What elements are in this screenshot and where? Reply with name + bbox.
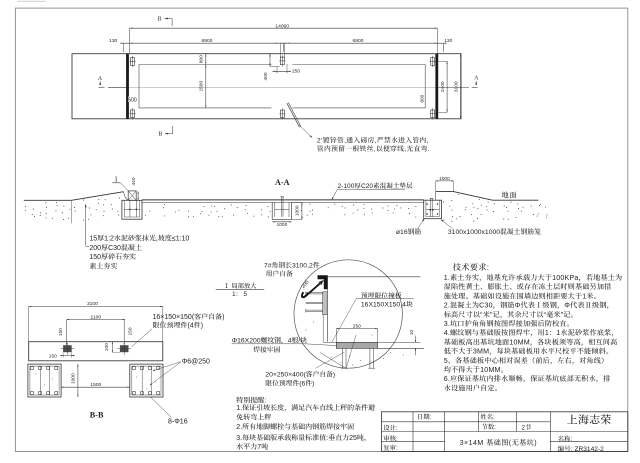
svg-text:20×250×400(客户自备): 20×250×400(客户自备) [265, 370, 335, 378]
svg-text:标高尺寸以“米”记，其余尺寸以“毫米”记。: 标高尺寸以“米”记，其余尺寸以“毫米”记。 [444, 310, 578, 319]
svg-text:800: 800 [420, 94, 425, 102]
svg-text:素土夯实: 素土夯实 [89, 263, 117, 271]
svg-text:250: 250 [353, 323, 361, 329]
svg-text:7#角钢长3100,2件: 7#角钢长3100,2件 [264, 261, 320, 269]
svg-text:1500: 1500 [198, 81, 204, 92]
svg-text:4.螺纹钢与基础版按图焊牢，用1：1水泥砂浆作底浆，: 4.螺纹钢与基础版按图焊牢，用1：1水泥砂浆作底浆， [444, 328, 619, 337]
svg-text:Ⅰ 局部放大: Ⅰ 局部放大 [223, 282, 257, 290]
svg-text:免转弯上秤: 免转弯上秤 [236, 414, 271, 422]
svg-text:16×150×150(客户自备): 16×150×150(客户自备) [153, 313, 225, 321]
svg-text:5、各基础板中心相对误差（前后，左右，对角线）: 5、各基础板中心相对误差（前后，左右，对角线） [444, 356, 609, 365]
svg-text:1000: 1000 [70, 373, 76, 384]
svg-text:审核:: 审核: [383, 434, 398, 442]
svg-text:6.应保证基坑内排水顺畅，保证基坑底部无积水，排: 6.应保证基坑内排水顺畅，保证基坑底部无积水，排 [444, 374, 611, 383]
svg-text:上海志荣: 上海志荣 [567, 413, 612, 426]
svg-text:8-Φ16: 8-Φ16 [168, 418, 188, 425]
svg-text:湿陷性黄土、膨胀土、或存在冻土层时则基础另加措: 湿陷性黄土、膨胀土、或存在冻土层时则基础另加措 [444, 282, 612, 291]
svg-text:130: 130 [109, 38, 117, 44]
svg-text:2’镀锌管,通入磅房,严禁水进入管内,: 2’镀锌管,通入磅房,严禁水进入管内, [317, 136, 429, 144]
svg-text:特别提醒:: 特别提醒: [236, 396, 266, 404]
svg-text:焊接牢固: 焊接牢固 [253, 346, 280, 354]
svg-text:400: 400 [263, 72, 269, 80]
svg-text:A-A: A-A [275, 178, 290, 187]
svg-text:Φ6@250: Φ6@250 [182, 358, 210, 365]
svg-text:姓名:: 姓名: [480, 413, 495, 421]
svg-text:3×14M 基础图(无基坑): 3×14M 基础图(无基坑) [460, 439, 537, 447]
svg-text:1： 5: 1： 5 [232, 291, 247, 298]
svg-text:150: 150 [49, 353, 57, 359]
svg-text:水平力7吨: 水平力7吨 [236, 443, 268, 451]
svg-text:节数:: 节数: [482, 423, 497, 431]
svg-text:ø16钢筋: ø16钢筋 [396, 228, 422, 236]
svg-text:基础板高出基坑地面10MM，各块板须等高，相互间高: 基础板高出基坑地面10MM，各块板须等高，相互间高 [444, 337, 618, 346]
svg-text:1500: 1500 [90, 382, 101, 388]
svg-text:管内预留一根铁丝,以便穿线,无直弯.: 管内预留一根铁丝,以便穿线,无直弯. [317, 145, 430, 153]
svg-text:6900: 6900 [353, 38, 364, 44]
svg-text:用户自备: 用户自备 [266, 270, 293, 278]
svg-text:1000: 1000 [439, 176, 450, 182]
svg-text:设计:: 设计: [383, 424, 398, 432]
svg-text:14060: 14060 [275, 23, 289, 29]
svg-text:1100: 1100 [91, 314, 102, 320]
svg-text:水设施用户自定。: 水设施用户自定。 [444, 383, 502, 392]
svg-text:150厚碎石夯实: 150厚碎石夯实 [89, 253, 136, 261]
svg-text:150: 150 [127, 327, 133, 335]
svg-text:440: 440 [131, 177, 137, 185]
svg-text:15厚1:2水泥砂浆抹光,坡度≤1:10: 15厚1:2水泥砂浆抹光,坡度≤1:10 [89, 235, 189, 243]
svg-text:技术要求:: 技术要求: [453, 263, 490, 272]
svg-text:限位预埋件(4件): 限位预埋件(4件) [153, 321, 204, 329]
svg-text:施处理。基础如设施在围墙边则相距要大于1米。: 施处理。基础如设施在围墙边则相距要大于1米。 [444, 292, 601, 300]
svg-text:16X150X150,4块: 16X150X150,4块 [361, 300, 413, 308]
svg-text:B: B [158, 131, 162, 137]
svg-text:Φ16X200螺纹钢，4根/块: Φ16X200螺纹钢，4根/块 [232, 336, 308, 344]
svg-text:B: B [158, 17, 162, 23]
svg-text:2.混凝土为C30，钢筋Φ代表Ⅰ级钢，Φ代表Ⅱ级钢，: 2.混凝土为C30，钢筋Φ代表Ⅰ级钢，Φ代表Ⅱ级钢， [444, 302, 614, 310]
svg-text:限位预埋件(6件): 限位预埋件(6件) [265, 379, 314, 387]
svg-text:1.保证引坡长度，满足汽车直线上秤的条件避: 1.保证引坡长度，满足汽车直线上秤的条件避 [236, 404, 375, 412]
svg-text:2节: 2节 [521, 424, 532, 432]
svg-text:250: 250 [292, 68, 300, 74]
svg-text:3100: 3100 [87, 301, 98, 307]
svg-text:10: 10 [409, 330, 415, 336]
svg-text:编号: ZR3142-2: 编号: ZR3142-2 [558, 445, 605, 453]
svg-text:3.每块基础版承载称量标准值:垂直力25吨，: 3.每块基础版承载称量标准值:垂直力25吨， [236, 434, 371, 442]
svg-text:150: 150 [58, 328, 64, 336]
svg-text:100: 100 [104, 343, 110, 351]
svg-text:6900: 6900 [202, 38, 213, 44]
svg-text:3100: 3100 [453, 81, 459, 92]
svg-text:均不得大于10MM。: 均不得大于10MM。 [444, 366, 508, 374]
svg-text:3.坑口护角角钢按图焊接加强后防校直。: 3.坑口护角角钢按图焊接加强后防校直。 [444, 319, 574, 328]
svg-text:800: 800 [198, 55, 204, 63]
svg-text:2-100厚C20素混凝土垫层: 2-100厚C20素混凝土垫层 [338, 182, 414, 190]
svg-text:2400: 2400 [440, 81, 446, 92]
svg-text:2.所有地脚螺栓与基础内钢筋焊接牢固: 2.所有地脚螺栓与基础内钢筋焊接牢固 [236, 423, 354, 431]
svg-text:500: 500 [128, 98, 137, 104]
svg-text:日期:: 日期: [417, 413, 432, 421]
svg-text:地面: 地面 [502, 190, 518, 199]
svg-text:1000: 1000 [295, 205, 301, 216]
svg-text:130: 130 [444, 38, 452, 44]
svg-text:B-B: B-B [90, 411, 104, 420]
svg-text:预埋限位撞板: 预埋限位撞板 [361, 292, 402, 300]
svg-text:1000: 1000 [277, 222, 288, 228]
svg-text:低不大于3MM，每块基础板用水平尺校平不能倾斜。: 低不大于3MM，每块基础板用水平尺校平不能倾斜。 [444, 347, 614, 356]
svg-text:复审:: 复审: [383, 444, 398, 452]
svg-text:3100x1000x1000混凝土钢筋笼: 3100x1000x1000混凝土钢筋笼 [448, 228, 541, 236]
svg-text:200厚C30混凝土: 200厚C30混凝土 [89, 244, 142, 252]
svg-text:名称:: 名称: [558, 435, 573, 443]
svg-text:1.素土夯实，地基允许承载力大于100KPa，若地基土为: 1.素土夯实，地基允许承载力大于100KPa，若地基土为 [444, 273, 623, 282]
